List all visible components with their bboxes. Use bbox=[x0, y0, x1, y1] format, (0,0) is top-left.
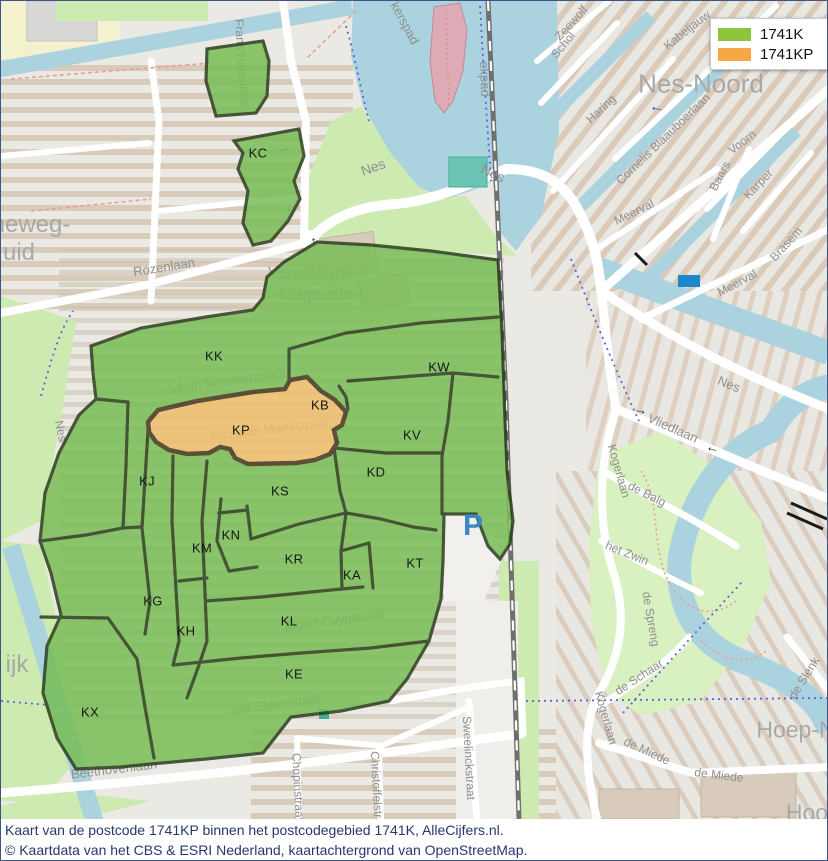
legend: 1741K 1741KP bbox=[710, 18, 828, 70]
legend-item-1741k: 1741K bbox=[718, 24, 826, 44]
map-screenshot: Frans HalsstraatkerspadekpadNesNesRozenl… bbox=[0, 0, 828, 861]
legend-swatch-orange bbox=[718, 48, 751, 61]
region-1741k-kc bbox=[234, 129, 304, 245]
caption-line-2: © Kaartdata van het CBS & ESRI Nederland… bbox=[5, 841, 828, 861]
map-canvas: Frans HalsstraatkerspadekpadNesNesRozenl… bbox=[1, 1, 828, 819]
legend-item-1741kp: 1741KP bbox=[718, 44, 826, 64]
postcode-overlay bbox=[1, 1, 828, 819]
legend-swatch-green bbox=[718, 28, 751, 41]
legend-label: 1741K bbox=[760, 26, 803, 43]
region-1741k-north bbox=[206, 41, 269, 116]
caption: Kaart van de postcode 1741KP binnen het … bbox=[1, 819, 828, 861]
legend-label: 1741KP bbox=[760, 46, 813, 63]
caption-line-1: Kaart van de postcode 1741KP binnen het … bbox=[5, 821, 828, 841]
